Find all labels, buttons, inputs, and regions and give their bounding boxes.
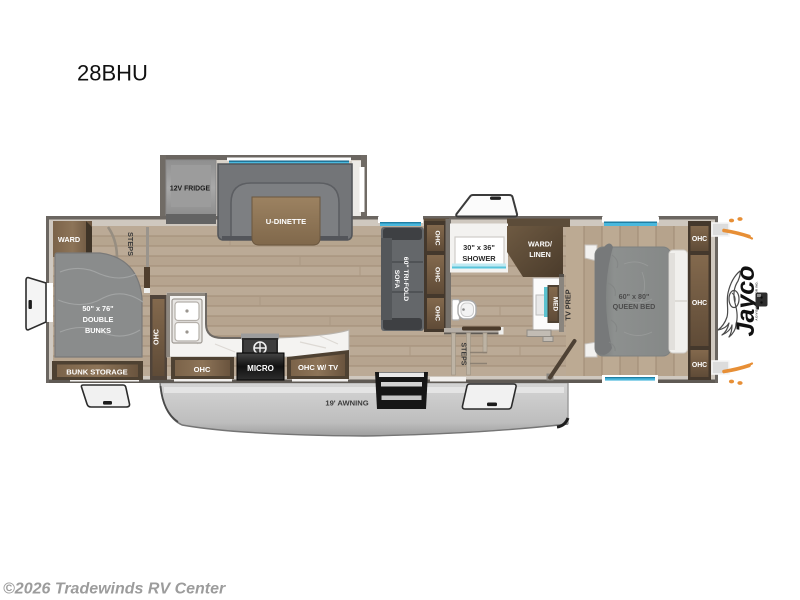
svg-text:STEPS: STEPS xyxy=(460,343,467,366)
svg-text:©2026 Tradewinds RV Center: ©2026 Tradewinds RV Center xyxy=(3,581,226,598)
svg-text:OHC: OHC xyxy=(434,267,441,282)
svg-text:QUEEN BED: QUEEN BED xyxy=(613,302,656,311)
svg-text:OHC: OHC xyxy=(434,230,441,245)
svg-text:19' AWNING: 19' AWNING xyxy=(325,399,368,408)
svg-text:LINEN: LINEN xyxy=(529,250,551,259)
svg-text:60" TRI-FOLD: 60" TRI-FOLD xyxy=(402,257,409,301)
svg-text:SOFA: SOFA xyxy=(393,270,400,289)
svg-text:U-DINETTE: U-DINETTE xyxy=(266,217,307,226)
svg-text:OHC: OHC xyxy=(434,306,441,321)
svg-text:OHC: OHC xyxy=(692,300,707,307)
svg-text:12V FRIDGE: 12V FRIDGE xyxy=(170,186,211,193)
svg-text:OHC W/ TV: OHC W/ TV xyxy=(298,363,339,372)
svg-text:MED: MED xyxy=(552,297,559,312)
svg-text:50" x 76": 50" x 76" xyxy=(82,304,113,313)
svg-text:MICRO: MICRO xyxy=(247,364,274,373)
svg-text:TV PREP: TV PREP xyxy=(564,289,573,320)
svg-text:BUNKS: BUNKS xyxy=(85,326,111,335)
svg-text:WARD/: WARD/ xyxy=(528,240,552,249)
svg-text:SHOWER: SHOWER xyxy=(462,254,496,263)
svg-text:BUNK STORAGE: BUNK STORAGE xyxy=(66,368,127,377)
svg-text:DOUBLE: DOUBLE xyxy=(83,315,114,324)
svg-text:OHC: OHC xyxy=(692,236,707,243)
svg-text:28BHU: 28BHU xyxy=(77,61,148,86)
svg-text:WARD: WARD xyxy=(58,235,80,244)
svg-text:STEPS: STEPS xyxy=(126,232,135,256)
svg-text:OHC: OHC xyxy=(152,329,161,345)
svg-text:OHC: OHC xyxy=(194,365,211,374)
svg-text:30" x 36": 30" x 36" xyxy=(463,243,495,252)
svg-text:60" x 80": 60" x 80" xyxy=(619,292,650,301)
svg-text:OHC: OHC xyxy=(692,362,707,369)
